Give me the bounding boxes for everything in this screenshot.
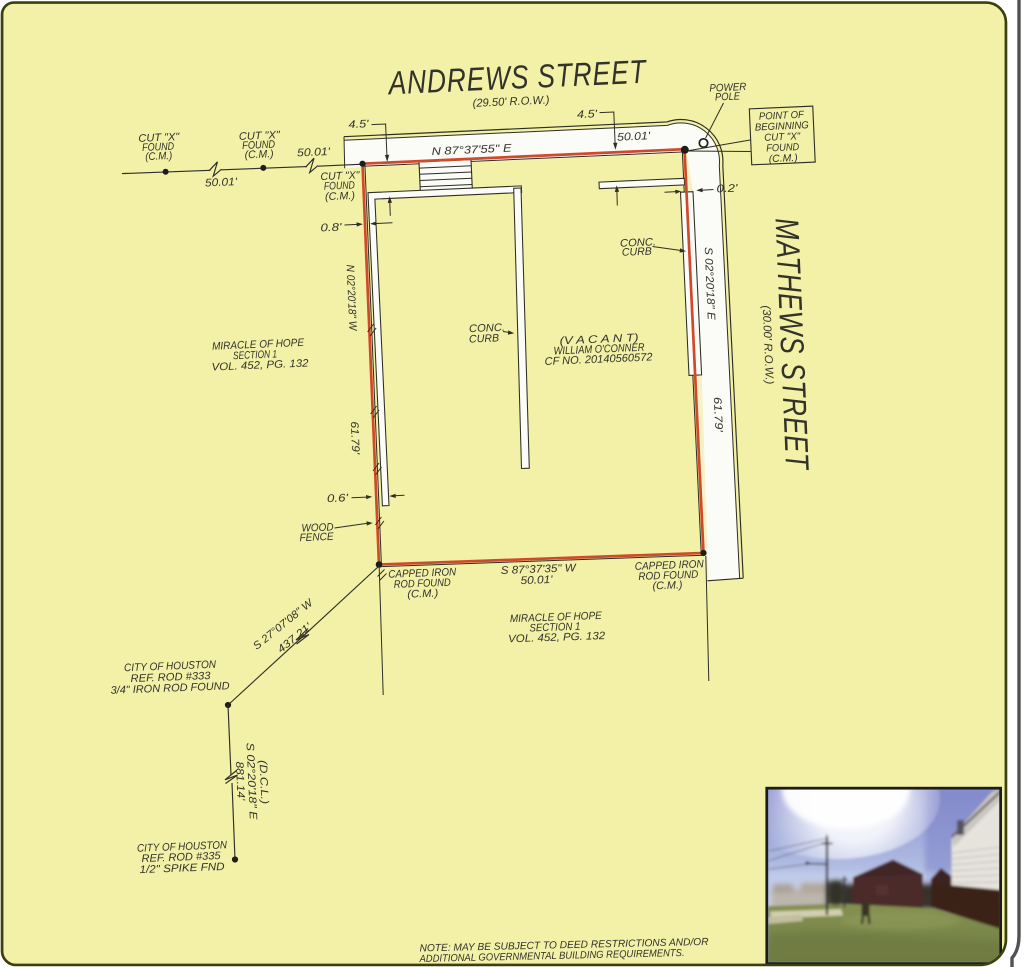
svg-text:4.5': 4.5' [348,118,370,131]
svg-text:(C.M.): (C.M.) [768,153,797,165]
svg-text:(C.M.): (C.M.) [325,190,355,203]
svg-text:FENCE: FENCE [299,531,334,544]
svg-text:(C.M.): (C.M.) [407,588,438,601]
svg-text:(C.M.): (C.M.) [244,148,273,161]
svg-text:(C.M.): (C.M.) [145,150,172,163]
svg-text:50.01': 50.01' [520,574,553,587]
svg-text:4.5': 4.5' [577,108,599,121]
svg-text:50.01': 50.01' [617,130,651,144]
svg-text:CURB: CURB [469,332,499,345]
svg-text:50.01': 50.01' [205,176,238,189]
svg-text:(D.C.L.): (D.C.L.) [257,760,271,804]
svg-text:0.2': 0.2' [716,183,739,196]
svg-text:POLE: POLE [715,90,741,103]
svg-text:50.01': 50.01' [297,146,331,159]
svg-text:61.79': 61.79' [348,421,361,455]
svg-text:CURB: CURB [622,246,652,259]
svg-text:0.8': 0.8' [320,222,343,235]
svg-text:0.6': 0.6' [327,492,350,505]
svg-text:61.79': 61.79' [711,397,725,434]
svg-text:(C.M.): (C.M.) [652,579,682,592]
